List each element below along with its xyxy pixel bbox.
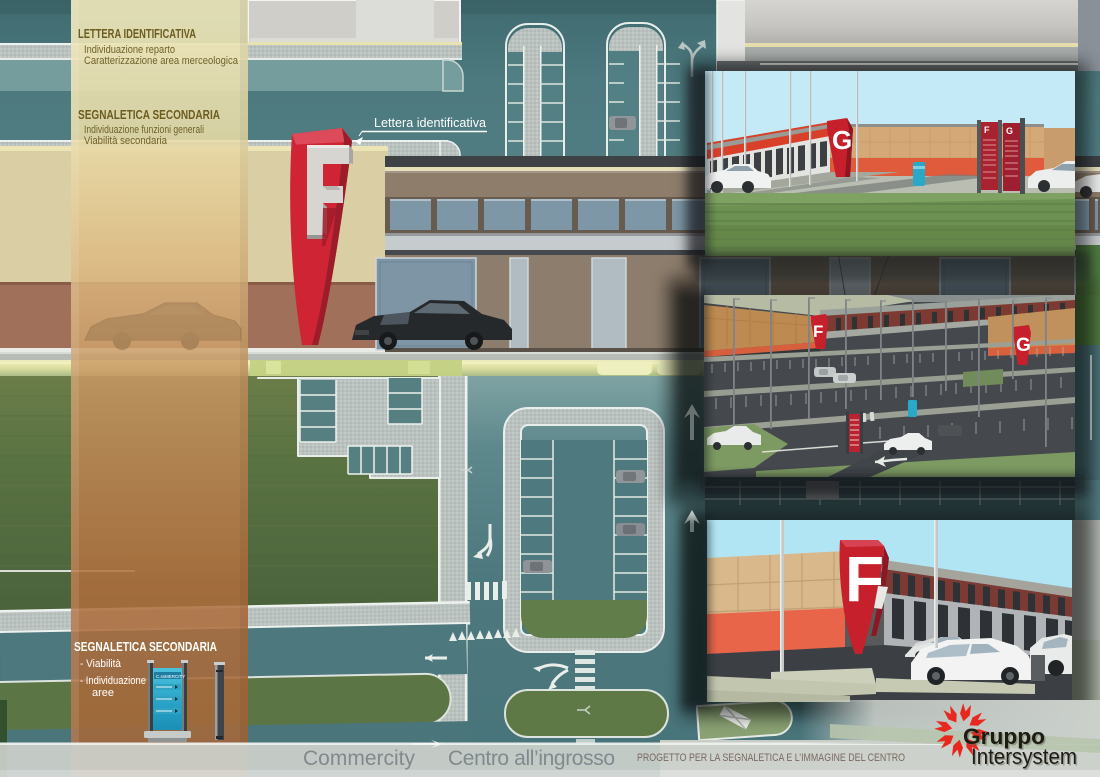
svg-text:C.ssMERCITY: C.ssMERCITY [156, 674, 185, 679]
svg-text:Intersystem: Intersystem [971, 744, 1077, 769]
svg-text:LETTERA IDENTIFICATIVA: LETTERA IDENTIFICATIVA [78, 27, 196, 41]
svg-text:Lettera identificativa: Lettera identificativa [374, 115, 487, 130]
svg-text:- Viabilità: - Viabilità [80, 658, 122, 670]
svg-text:aree: aree [92, 687, 114, 699]
svg-text:SEGNALETICA SECONDARIA: SEGNALETICA SECONDARIA [78, 108, 220, 122]
svg-text:Centro all’ingrosso: Centro all’ingrosso [448, 747, 615, 770]
svg-text:G: G [832, 125, 852, 155]
svg-text:Caratterizzazione area merceol: Caratterizzazione area merceologica [84, 55, 239, 67]
svg-text:PROGETTO PER LA SEGNALETICA E: PROGETTO PER LA SEGNALETICA E L’IMMAGINE… [637, 752, 905, 764]
svg-text:Commercity: Commercity [303, 747, 416, 770]
svg-text:G: G [1016, 335, 1031, 356]
svg-text:- Individuazione: - Individuazione [80, 675, 146, 687]
svg-text:G: G [1006, 126, 1013, 136]
svg-text:F: F [813, 322, 823, 341]
svg-text:Viabilità secondaria: Viabilità secondaria [84, 135, 168, 147]
svg-text:F: F [984, 125, 990, 135]
svg-text:SEGNALETICA SECONDARIA: SEGNALETICA SECONDARIA [74, 640, 217, 654]
